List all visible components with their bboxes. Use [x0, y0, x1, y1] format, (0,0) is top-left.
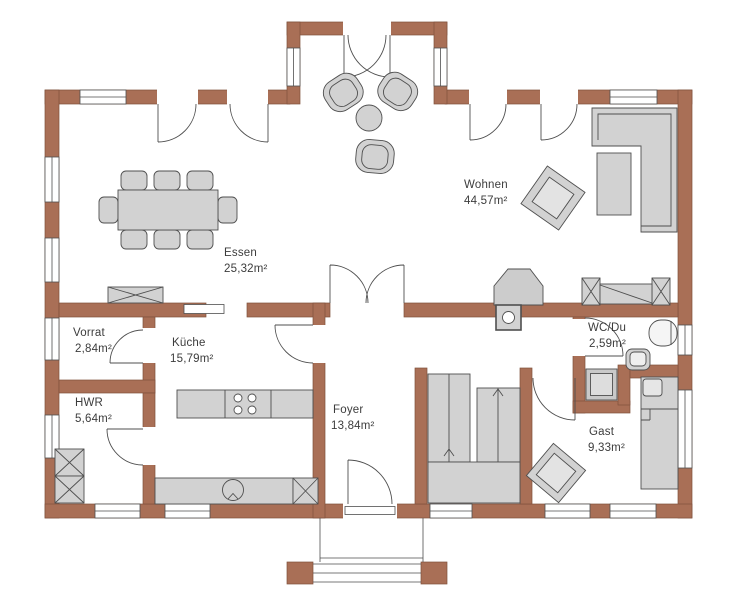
bay-door-arc — [348, 35, 390, 77]
bay-seating — [318, 67, 422, 174]
door-opening — [142, 328, 156, 363]
armchair — [355, 138, 396, 174]
wall-segment — [520, 368, 532, 504]
door-opening — [469, 89, 507, 105]
room-area: 25,32m² — [224, 263, 268, 275]
room-label-vorrat: Vorrat 2,84m² — [73, 327, 112, 355]
toilet — [649, 320, 677, 346]
entrance-porch — [313, 518, 423, 582]
cooktop-burner — [248, 394, 256, 402]
cooktop-burner — [248, 406, 256, 414]
room-label-gast: Gast 9,33m² — [588, 426, 625, 454]
room-name: WC/Du — [588, 322, 626, 334]
dining-chair — [154, 230, 180, 249]
porch-steps — [313, 564, 421, 582]
door-opening — [142, 427, 156, 465]
pantry-door-arc — [110, 330, 143, 363]
room-name: Gast — [589, 426, 615, 438]
door-opening — [540, 89, 578, 105]
wall-segment — [415, 368, 427, 504]
coffee-table — [597, 153, 631, 215]
porch-pillar — [421, 562, 447, 584]
dining-chair — [99, 197, 118, 223]
room-area: 2,59m² — [589, 338, 626, 350]
room-label-wohnen: Wohnen 44,57m² — [464, 179, 508, 207]
room-label-essen: Essen 25,32m² — [224, 247, 268, 275]
door-opening — [312, 325, 326, 363]
dining-table — [118, 190, 218, 230]
dining-set — [99, 171, 237, 249]
cooktop-burner — [234, 394, 242, 402]
door-opening — [157, 89, 198, 105]
dining-chair — [218, 197, 237, 223]
kitchen-sink — [223, 480, 244, 501]
shower-tray — [591, 374, 613, 396]
wash-basin-bowl — [630, 352, 646, 366]
entrance-door-arc — [348, 460, 392, 504]
kitchen-door-arc — [275, 325, 313, 363]
room-name: Küche — [172, 337, 206, 349]
dining-chair — [187, 171, 213, 190]
dining-chair — [187, 230, 213, 249]
pass-through-counter — [184, 305, 224, 314]
dryer — [55, 476, 84, 503]
washer — [55, 449, 84, 476]
pillow — [643, 379, 662, 396]
room-area: 44,57m² — [464, 195, 508, 207]
guest-bed — [641, 377, 678, 489]
utility-door-arc — [107, 429, 143, 465]
terrace-door-arc — [158, 104, 196, 142]
fireplace — [494, 269, 543, 305]
door-opening — [572, 319, 586, 356]
cooktop-burner — [234, 406, 242, 414]
room-area: 15,79m² — [170, 353, 214, 365]
dining-chair — [121, 230, 147, 249]
foyer-double-door-arc — [366, 265, 404, 303]
floor-plan-drawing: Wohnen 44,57m² Essen 25,32m² Vorrat 2,84… — [0, 0, 737, 601]
kitchen-counter — [155, 478, 318, 504]
guest-chair — [526, 443, 585, 502]
stove-flue — [503, 312, 515, 324]
living-door-arc — [541, 104, 577, 140]
floor-plan: Wohnen 44,57m² Essen 25,32m² Vorrat 2,84… — [0, 0, 737, 601]
round-table — [356, 105, 382, 131]
wardrobe — [428, 374, 520, 503]
lounge-chair — [521, 166, 585, 230]
room-area: 13,84m² — [331, 420, 375, 432]
entrance-threshold — [345, 507, 395, 515]
kitchen-island — [177, 390, 313, 418]
wardrobe-bench — [428, 462, 520, 503]
sideboard — [582, 278, 670, 305]
dining-chair — [154, 171, 180, 190]
terrace-door-arc — [230, 104, 268, 142]
guest-door-arc — [533, 378, 575, 420]
bay-door-arc — [344, 35, 386, 77]
porch-pillar — [287, 562, 313, 584]
living-door-arc — [470, 104, 506, 140]
door-opening — [227, 89, 268, 105]
room-label-foyer: Foyer 13,84m² — [331, 404, 375, 432]
room-name: Foyer — [333, 404, 363, 416]
room-label-hwr: HWR 5,64m² — [75, 397, 112, 425]
wall-segment — [59, 380, 155, 393]
room-area: 2,84m² — [75, 343, 112, 355]
door-opening — [343, 21, 391, 36]
foyer-double-door-arc — [330, 265, 368, 303]
armchair — [373, 67, 423, 115]
room-name: Wohnen — [464, 179, 508, 191]
wall-segment — [618, 365, 630, 405]
room-name: HWR — [75, 397, 103, 409]
room-name: Essen — [224, 247, 257, 259]
room-label-kueche: Küche 15,79m² — [170, 337, 214, 365]
porch-outline — [320, 518, 423, 562]
room-name: Vorrat — [73, 327, 105, 339]
dining-chair — [121, 171, 147, 190]
room-area: 9,33m² — [588, 442, 625, 454]
room-area: 5,64m² — [75, 413, 112, 425]
room-label-wc: WC/Du 2,59m² — [588, 322, 626, 350]
sideboard — [108, 287, 163, 303]
